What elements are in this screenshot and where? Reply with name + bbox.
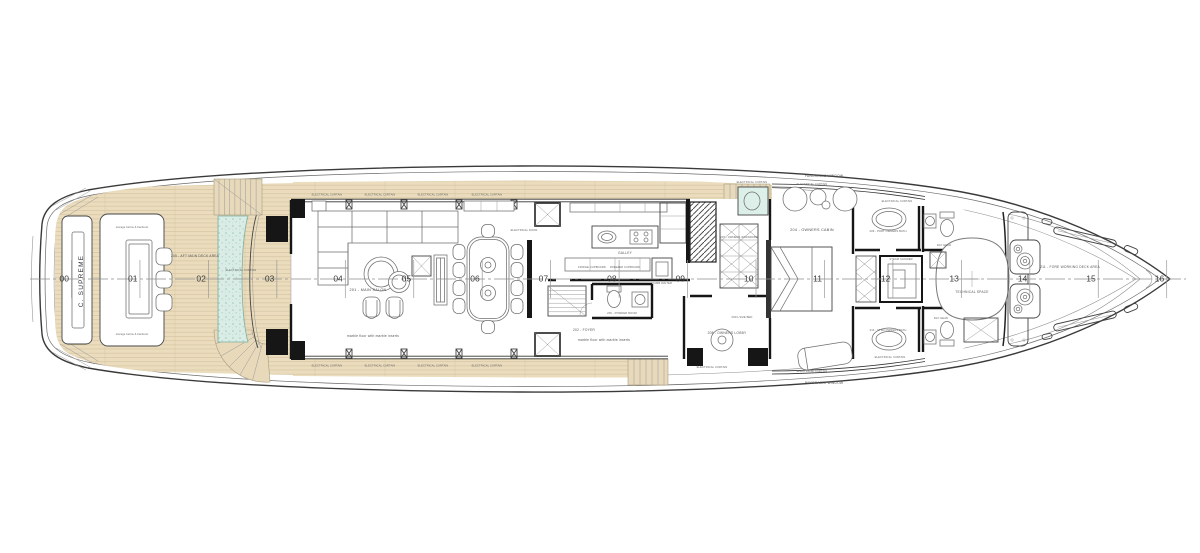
electrical-curtain-label: ELECTRICAL CURTAIN: [312, 364, 343, 368]
station-number: 05: [402, 274, 412, 284]
station-number: 12: [881, 274, 891, 284]
owners-wardrobe-label: 207 - OWNERS WARDROBE: [720, 235, 758, 239]
freezer-label: FREEZER CUPBOARD: [610, 265, 640, 269]
station-number: 11: [813, 274, 822, 284]
side-boarding-hatch-bottom: [535, 333, 560, 356]
electrical-door-label: ELECTRICAL DOOR: [511, 228, 538, 232]
toilet: [608, 291, 621, 308]
station-number: 09: [676, 274, 686, 284]
lobby-curtain: ELECTRICAL CURTAIN: [697, 365, 728, 369]
side-boarding-hatch-top: [535, 203, 560, 226]
pool-curtain-label: ELECTRICAL CURTAIN: [226, 268, 257, 272]
fore-deck-label: 211 - FORE WORKING DECK AREA: [1040, 265, 1100, 269]
panoramic-window-bottom: PANORAMIC WINDOW: [805, 381, 844, 385]
panoramic-window-top: PANORAMIC WINDOW: [805, 174, 844, 178]
steam-shower-label: STEAM SHOWER: [889, 257, 912, 261]
yacht-name: C. SUPREME: [78, 255, 85, 307]
electrical-curtain-label: ELECTRICAL CURTAIN: [472, 193, 503, 197]
station-number: 00: [60, 274, 70, 284]
cleat: [1042, 218, 1053, 225]
foyer-label: 202 - FOYER: [573, 328, 595, 332]
station-number: 14: [1018, 274, 1028, 284]
owners-cabin-label: 204 - OWNERS CABIN: [790, 228, 834, 232]
owners-curtain-bottom: ELECTRICAL CURTAIN: [797, 369, 828, 373]
side-deck-teak-bottom: [293, 359, 668, 378]
marble-floor-label: marble floor with marble inserts: [347, 334, 399, 338]
galley-label: GALLEY: [618, 251, 633, 255]
deck-cabinet: [266, 329, 288, 355]
aft-deck-label: 205 - AFT MAIN DECK AREA: [171, 254, 220, 258]
stbd-bath-curtain: ELECTRICAL CURTAIN: [875, 355, 906, 359]
station-number: 06: [470, 274, 480, 284]
toilet: [941, 322, 954, 339]
fridge-label: FRIDGE CUPBOARD: [578, 265, 606, 269]
owners-lobby-label: 208 - OWNERS LOBBY: [708, 331, 747, 335]
station-number: 04: [333, 274, 343, 284]
station-number: 03: [265, 274, 275, 284]
deck-plan-canvas: C. SUPREME storage below & backrest stor…: [0, 0, 1200, 553]
storage-label-bottom: storage below & backrest: [116, 332, 149, 336]
station-number: 13: [949, 274, 959, 284]
station-number: 15: [1086, 274, 1096, 284]
aft-stairs-up: [214, 179, 262, 215]
owners-shower-room: [738, 187, 768, 215]
deck-cabinet: [266, 216, 288, 242]
day-head-bottom-label: DAY HEAD: [934, 316, 948, 320]
cleat: [1042, 333, 1053, 340]
side-deck-teak-top: [293, 181, 772, 200]
station-number: 02: [196, 274, 206, 284]
armchair: [386, 297, 403, 317]
ottoman: [833, 187, 857, 211]
toilet: [941, 220, 954, 237]
bridge-stairs: [686, 199, 716, 263]
port-bath-curtain: ELECTRICAL CURTAIN: [882, 199, 913, 203]
station-number: 08: [607, 274, 617, 284]
deck-plan-svg: C. SUPREME storage below & backrest stor…: [0, 0, 1200, 553]
dumb-waiter: [652, 258, 672, 280]
station-number: 07: [539, 274, 549, 284]
tv-cabinet: [412, 256, 431, 276]
owners-curtain-top: ELECTRICAL CURTAIN: [797, 182, 828, 186]
technical-space-label: TECHNICAL SPACE: [955, 290, 989, 294]
windlass-stbd: [1010, 284, 1040, 318]
stool: [156, 248, 172, 265]
ottoman: [783, 187, 807, 211]
stool: [156, 294, 172, 311]
electrical-curtain-label: ELECTRICAL CURTAIN: [312, 193, 343, 197]
day-head-top-label: DAY HEAD: [937, 243, 951, 247]
king-bed-label: KING SIZE BED: [732, 315, 753, 319]
station-number: 10: [744, 274, 754, 284]
dumb-waiter-label: DUMB WAITER: [652, 281, 672, 285]
wardrobe-curtain: ELECTRICAL CURTAIN: [737, 180, 768, 184]
station-number: 01: [128, 274, 138, 284]
main-salon-label: 201 - MAIN SALON: [350, 288, 387, 292]
station-number: 16: [1155, 274, 1165, 284]
armchair: [363, 297, 380, 317]
electrical-curtain-label: ELECTRICAL CURTAIN: [365, 364, 396, 368]
windlass-port: [1010, 240, 1040, 274]
electrical-curtain-label: ELECTRICAL CURTAIN: [365, 193, 396, 197]
galley-island: [592, 226, 658, 248]
electrical-curtain-label: ELECTRICAL CURTAIN: [418, 364, 449, 368]
stool: [156, 271, 172, 288]
electrical-curtain-label: ELECTRICAL CURTAIN: [472, 364, 503, 368]
port-bath-label: 209 - PORT OWNERS BATH: [870, 229, 907, 233]
galley-counter: [565, 258, 650, 271]
stbd-bath-label: 210 - STBD OWNERS BATH: [870, 328, 907, 332]
powder-room-label: 206 - POWDER ROOM: [607, 311, 637, 315]
electrical-curtain-label: ELECTRICAL CURTAIN: [418, 193, 449, 197]
marble-floor-label-2: marble floor with marble inserts: [578, 338, 630, 342]
storage-label-top: storage below & backrest: [116, 225, 149, 229]
